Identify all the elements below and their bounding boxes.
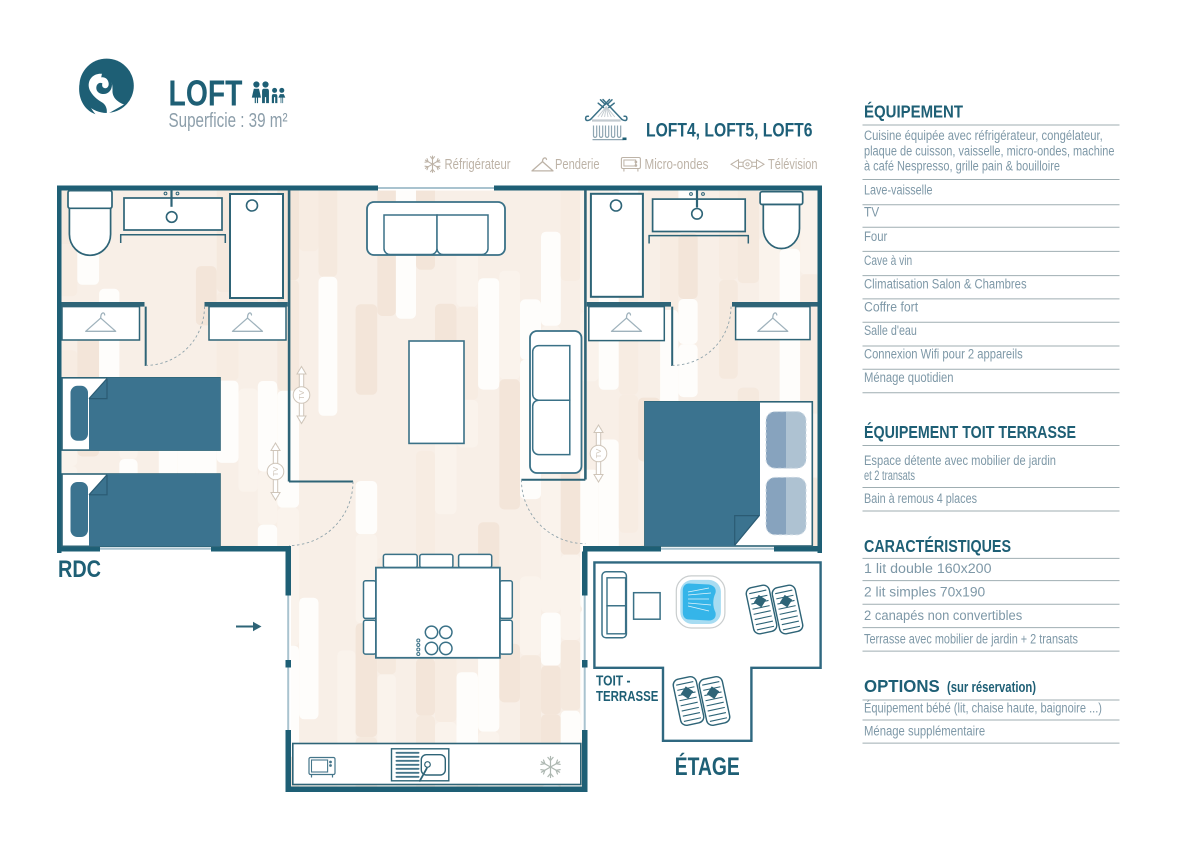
svg-text:Terrasse avec mobilier de jard: Terrasse avec mobilier de jardin + 2 tra… <box>864 632 1078 647</box>
svg-text:LOFT4, LOFT5, LOFT6: LOFT4, LOFT5, LOFT6 <box>646 121 813 142</box>
svg-text:TV: TV <box>271 467 280 477</box>
svg-text:(sur réservation): (sur réservation) <box>947 679 1036 696</box>
svg-text:TOIT -: TOIT - <box>596 674 631 690</box>
svg-text:Équipement bébé (lit, chaise h: Équipement bébé (lit, chaise haute, baig… <box>864 701 1102 716</box>
svg-text:Lave-vaisselle: Lave-vaisselle <box>864 182 933 197</box>
svg-text:Micro-ondes: Micro-ondes <box>645 157 709 173</box>
svg-text:TV: TV <box>594 449 603 459</box>
svg-text:2 lit simples 70x190: 2 lit simples 70x190 <box>864 585 985 600</box>
svg-text:Cave à vin: Cave à vin <box>864 253 912 268</box>
svg-text:Superficie : 39 m²: Superficie : 39 m² <box>169 110 288 132</box>
svg-text:TV: TV <box>297 390 306 400</box>
svg-text:Réfrigérateur: Réfrigérateur <box>445 157 511 173</box>
svg-text:OPTIONS: OPTIONS <box>864 676 940 696</box>
svg-text:ÉTAGE: ÉTAGE <box>675 752 740 781</box>
svg-text:TV: TV <box>864 204 879 219</box>
svg-text:TERRASSE: TERRASSE <box>596 689 659 705</box>
svg-text:LOFT: LOFT <box>169 73 243 114</box>
svg-text:et 2 transats: et 2 transats <box>864 468 915 483</box>
svg-text:1 lit double 160x200: 1 lit double 160x200 <box>864 561 992 576</box>
svg-text:Climatisation Salon & Chambres: Climatisation Salon & Chambres <box>864 276 1027 291</box>
svg-text:Penderie: Penderie <box>555 157 600 173</box>
svg-text:Four: Four <box>864 229 888 244</box>
svg-text:2 canapés non convertibles: 2 canapés non convertibles <box>864 608 1023 623</box>
svg-text:CARACTÉRISTIQUES: CARACTÉRISTIQUES <box>864 535 1011 556</box>
svg-text:Coffre fort: Coffre fort <box>864 300 918 315</box>
svg-text:plaque de cuisson, vaisselle,: plaque de cuisson, vaisselle, micro-onde… <box>864 143 1115 158</box>
svg-text:Salle d'eau: Salle d'eau <box>864 323 917 338</box>
svg-text:Espace détente avec mobilier: Espace détente avec mobilier de jardin <box>864 453 1056 468</box>
svg-text:Télévision: Télévision <box>768 157 818 173</box>
svg-text:Ménage quotidien: Ménage quotidien <box>864 370 954 385</box>
svg-text:ÉQUIPEMENT TOIT TERRASSE: ÉQUIPEMENT TOIT TERRASSE <box>864 421 1076 442</box>
svg-text:à café Nespresso, grille pain: à café Nespresso, grille pain & bouilloi… <box>864 159 1060 174</box>
svg-text:Connexion Wifi pour 2 appareil: Connexion Wifi pour 2 appareils <box>864 346 1023 361</box>
svg-text:Ménage supplémentaire: Ménage supplémentaire <box>864 724 985 739</box>
svg-text:RDC: RDC <box>58 556 101 583</box>
svg-text:Cuisine équipée avec réfrigéra: Cuisine équipée avec réfrigérateur, cong… <box>864 128 1103 143</box>
svg-text:ÉQUIPEMENT: ÉQUIPEMENT <box>864 101 963 122</box>
svg-text:Bain à remous 4 places: Bain à remous 4 places <box>864 491 977 506</box>
